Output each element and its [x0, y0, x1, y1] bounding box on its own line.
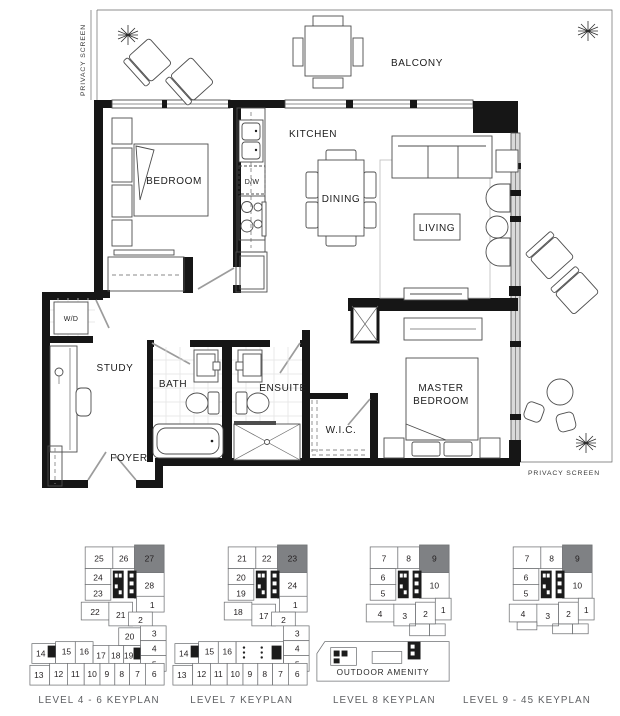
stair-core-icon: [48, 646, 56, 658]
room-label-master-1: MASTER: [418, 383, 463, 394]
unit-number: 7: [525, 554, 530, 564]
unit-number: 22: [262, 554, 272, 564]
unit-number: 19: [236, 588, 246, 598]
unit-number: 5: [381, 588, 386, 598]
unit-number: 8: [407, 554, 412, 564]
unit-number: 11: [71, 669, 80, 679]
unit-number: 8: [119, 669, 124, 679]
unit-number: 13: [34, 670, 44, 680]
unit-number: 17: [96, 650, 106, 660]
unit-number: 6: [381, 572, 386, 582]
unit-number: 3: [545, 611, 550, 621]
unit-number: 3: [152, 629, 157, 639]
keyplan-caption: LEVEL 7 KEYPLAN: [190, 695, 293, 706]
stair-core-icon: [190, 646, 198, 658]
unit-number: 4: [295, 644, 300, 654]
room-label-kitchen: KITCHEN: [289, 129, 337, 140]
room-label-ensuite: ENSUITE: [259, 383, 307, 394]
unit-number: 28: [145, 580, 155, 590]
washer-dryer-label: W/D: [64, 316, 79, 323]
unit-number: 23: [93, 588, 103, 598]
unit-number: 18: [111, 650, 121, 660]
unit-number: 1: [584, 605, 589, 615]
unit-number: 1: [150, 600, 155, 610]
unit-number: 8: [262, 669, 267, 679]
unit-number: 3: [295, 629, 300, 639]
unit-number: 15: [62, 646, 72, 656]
unit-number: 4: [378, 609, 383, 619]
unit-number: 15: [204, 646, 214, 656]
elevator-core-icon: [541, 571, 565, 599]
plant-icon: [118, 25, 138, 45]
keyplan-level-9-45: 7 8 9 6 5 10 4 3 2 1 LEVEL 9 - 45 KEY: [456, 541, 598, 706]
unit-number: 16: [79, 646, 89, 656]
unit-number: 21: [237, 554, 247, 564]
unit-number: 10: [573, 580, 583, 590]
unit-number: 14: [179, 648, 189, 658]
unit-number: 4: [521, 609, 526, 619]
elevator-core-icon: [398, 571, 422, 599]
jog-cell: [430, 624, 446, 636]
unit-number: 3: [403, 611, 408, 621]
room-label-master-2: BEDROOM: [413, 396, 469, 407]
unit-number: 2: [423, 609, 428, 619]
unit-number: 22: [90, 607, 100, 617]
unit-number: 20: [125, 632, 135, 642]
unit-number: 7: [382, 554, 387, 564]
unit-number: 7: [278, 669, 283, 679]
unit-number: 1: [293, 600, 298, 610]
jog-cell: [517, 622, 537, 630]
unit-number: 21: [116, 610, 126, 620]
room-label-foyer: FOYER: [110, 453, 147, 464]
keyplan-caption: LEVEL 4 - 6 KEYPLAN: [38, 695, 159, 706]
unit-number: 1: [441, 605, 446, 615]
unit-number: 2: [281, 615, 286, 625]
unit-number: 19: [124, 650, 134, 660]
keyplan-caption: LEVEL 9 - 45 KEYPLAN: [463, 695, 591, 706]
unit-number: 20: [236, 572, 246, 582]
stair-core-icon: [408, 642, 421, 660]
room-label-living: LIVING: [419, 223, 455, 234]
jog-cell: [572, 624, 588, 634]
unit-number: 13: [177, 670, 187, 680]
unit-number: 2: [566, 609, 571, 619]
unit-number: 6: [524, 572, 529, 582]
unit-number: 4: [152, 644, 157, 654]
unit-number: 24: [287, 580, 297, 590]
keyplans-row: 25 26 27 24 23 28 22 21 1 2 20 3 4 5: [0, 535, 620, 706]
unit-number-highlighted: 9: [575, 554, 580, 564]
unit-number: 6: [295, 669, 300, 679]
plant-icon: [576, 433, 596, 453]
unit-number: 26: [119, 554, 129, 564]
unit-number-highlighted: 23: [287, 554, 297, 564]
floorplan-page: BEDROOM D/W KITCHEN: [0, 0, 620, 716]
keyplan-level-4-6: 25 26 27 24 23 28 22 21 1 2 20 3 4 5: [28, 541, 170, 706]
elevator-core-icon: [255, 571, 279, 599]
unit-number: 18: [233, 607, 243, 617]
living-furniture: [380, 136, 518, 300]
room-label-wic: W.I.C.: [326, 425, 357, 436]
dishwasher-label: D/W: [245, 179, 260, 186]
stair-core-icon: [271, 646, 281, 660]
unit-number: 10: [87, 669, 97, 679]
privacy-screen-label-left: PRIVACY SCREEN: [80, 24, 87, 96]
shaft: [352, 306, 378, 342]
unit-number: 25: [94, 554, 104, 564]
study-furniture: [48, 298, 95, 486]
unit-number: 2: [138, 615, 143, 625]
room-label-balcony: BALCONY: [391, 58, 443, 69]
unit-number: 8: [549, 554, 554, 564]
plant-icon: [578, 21, 598, 41]
unit-number-highlighted: 27: [145, 554, 155, 564]
amenity-label: OUTDOOR AMENITY: [337, 668, 430, 677]
unit-number: 10: [430, 580, 440, 590]
unit-number: 16: [222, 646, 232, 656]
floor-plan: BEDROOM D/W KITCHEN: [0, 0, 620, 535]
room-label-bath: BATH: [159, 379, 187, 390]
room-label-study: STUDY: [97, 363, 134, 374]
room-label-dining: DINING: [322, 194, 361, 205]
unit-number: 9: [247, 669, 252, 679]
stair-core-icon: [134, 648, 141, 660]
privacy-screen-label-right: PRIVACY SCREEN: [528, 470, 600, 477]
unit-number: 9: [105, 669, 110, 679]
keyplan-level-8: 7 8 9 6 5 10 4 3 2 1: [313, 541, 455, 706]
unit-number: 11: [214, 669, 223, 679]
unit-number: 5: [524, 588, 529, 598]
unit-number: 24: [93, 572, 103, 582]
unit-number-highlighted: 9: [432, 554, 437, 564]
unit-number: 12: [196, 669, 206, 679]
unit-number: 7: [135, 669, 140, 679]
ensuite-fixtures: [232, 347, 302, 460]
unit-number: 14: [36, 648, 46, 658]
keyplan-caption: LEVEL 8 KEYPLAN: [333, 695, 436, 706]
unit-number: 17: [259, 611, 269, 621]
unit-number: 6: [152, 669, 157, 679]
room-label-bedroom: BEDROOM: [146, 176, 202, 187]
unit-number: 12: [54, 669, 64, 679]
keyplan-level-7: 21 22 23 20 19 24 18 17 1 2 3 4 5 14: [171, 541, 313, 706]
elevator-core-icon: [113, 571, 137, 599]
unit-number: 10: [230, 669, 240, 679]
